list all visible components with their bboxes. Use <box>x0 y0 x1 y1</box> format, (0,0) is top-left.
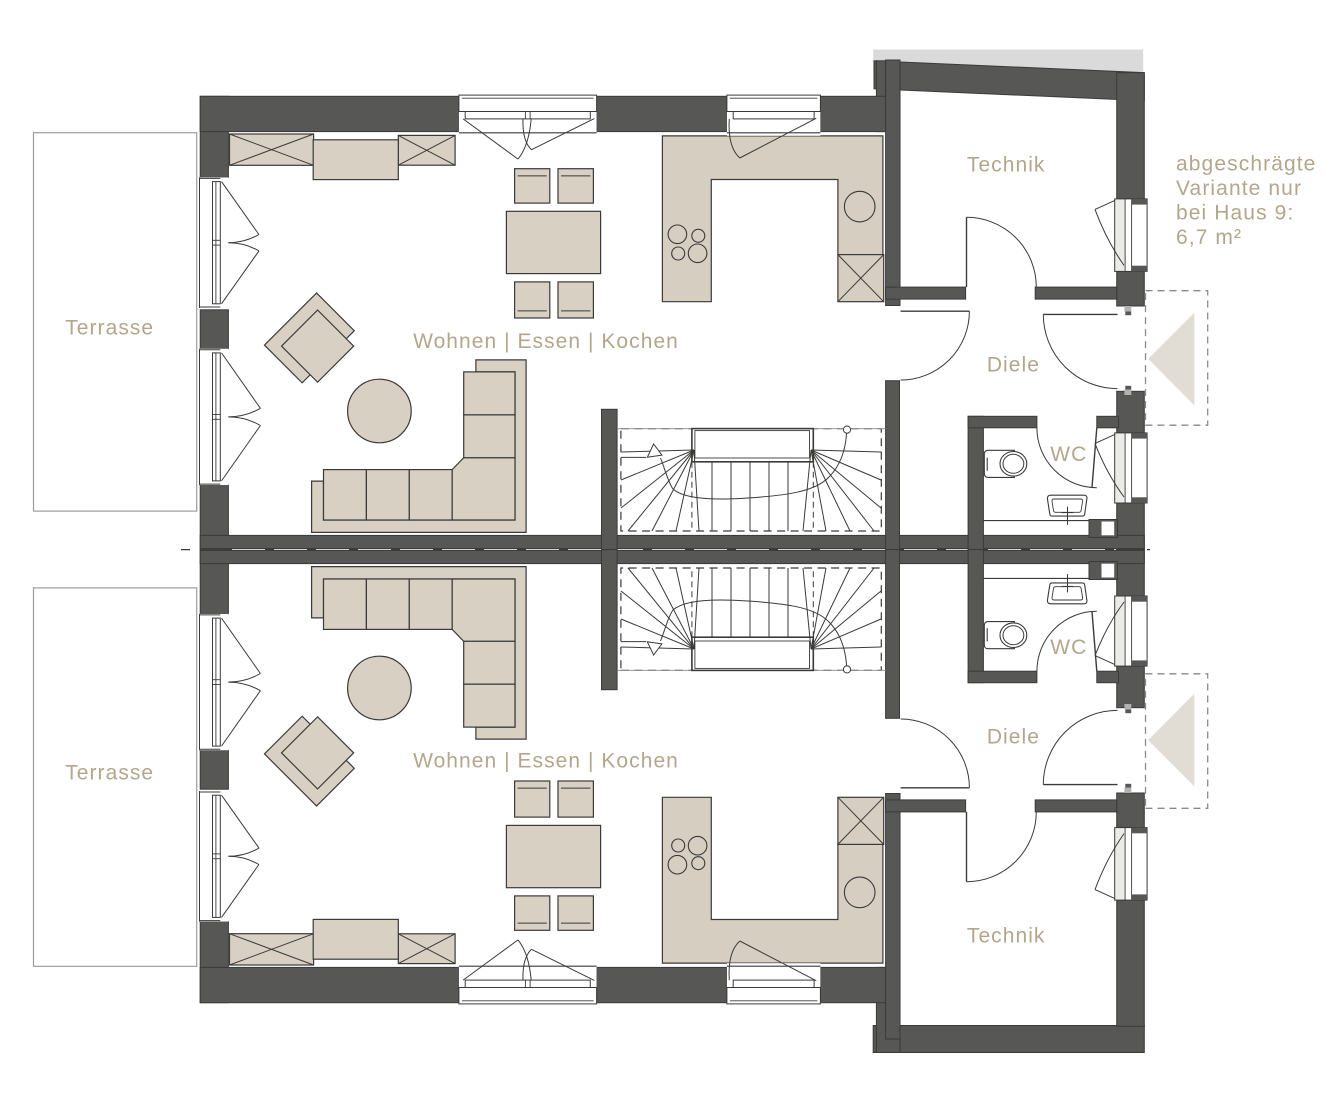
svg-text:WC: WC <box>1050 443 1087 466</box>
svg-text:Diele: Diele <box>987 726 1040 749</box>
svg-text:Technik: Technik <box>967 925 1046 948</box>
svg-text:Wohnen | Essen | Kochen: Wohnen | Essen | Kochen <box>413 750 679 773</box>
svg-text:Wohnen | Essen | Kochen: Wohnen | Essen | Kochen <box>413 330 679 353</box>
svg-text:Technik: Technik <box>967 153 1046 176</box>
svg-text:Diele: Diele <box>987 354 1040 377</box>
svg-text:Terrasse: Terrasse <box>65 762 154 785</box>
svg-text:Terrasse: Terrasse <box>65 317 154 340</box>
svg-text:WC: WC <box>1050 636 1087 659</box>
